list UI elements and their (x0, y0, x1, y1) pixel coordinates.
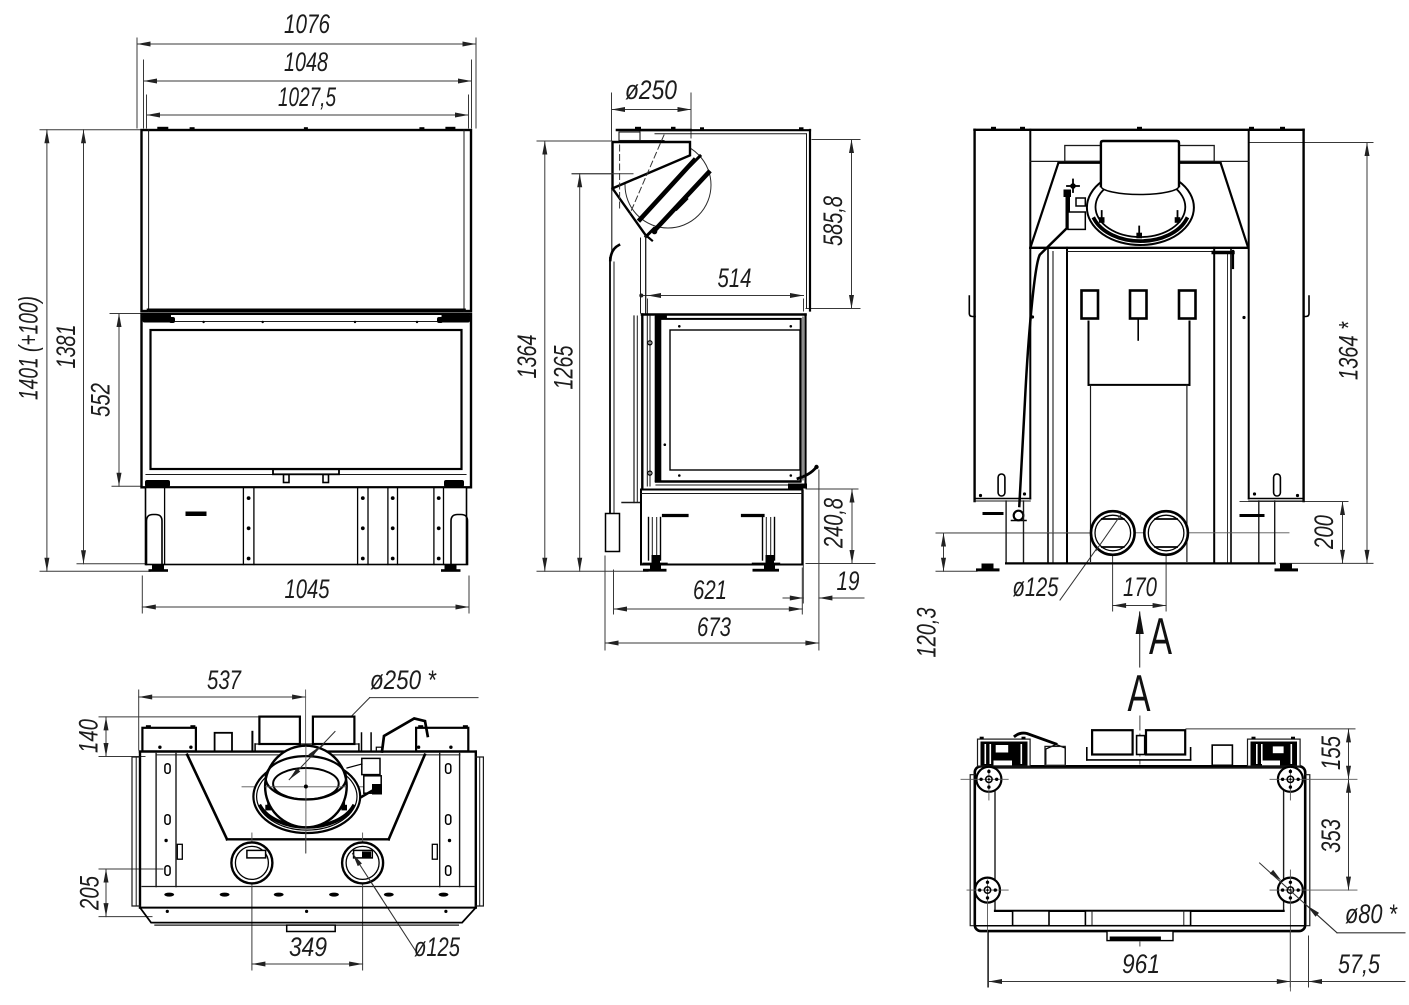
svg-text:1048: 1048 (284, 47, 328, 77)
svg-text:961: 961 (1122, 949, 1160, 979)
svg-text:1265: 1265 (549, 345, 579, 390)
svg-text:170: 170 (1123, 572, 1157, 602)
svg-text:140: 140 (74, 719, 104, 753)
svg-text:1076: 1076 (284, 9, 331, 39)
svg-text:353: 353 (1316, 819, 1346, 853)
svg-text:1027,5: 1027,5 (278, 82, 337, 112)
svg-text:585,8: 585,8 (818, 196, 848, 246)
svg-text:ø250: ø250 (625, 75, 677, 105)
svg-text:514: 514 (718, 263, 752, 293)
svg-text:621: 621 (693, 575, 727, 605)
svg-text:537: 537 (207, 665, 242, 695)
svg-text:1381: 1381 (51, 325, 81, 369)
svg-text:1364: 1364 (512, 335, 542, 379)
svg-text:205: 205 (75, 875, 105, 910)
svg-text:155: 155 (1316, 735, 1346, 770)
svg-text:1401 (+100): 1401 (+100) (14, 296, 44, 400)
svg-text:240,8: 240,8 (819, 498, 849, 549)
svg-text:ø250 *: ø250 * (370, 665, 437, 695)
svg-text:552: 552 (86, 383, 116, 417)
svg-text:ø125: ø125 (414, 932, 461, 962)
svg-text:A: A (1149, 608, 1172, 666)
svg-text:57,5: 57,5 (1338, 949, 1381, 979)
svg-text:1045: 1045 (285, 574, 331, 604)
svg-text:1364 *: 1364 * (1334, 321, 1364, 380)
svg-text:120,3: 120,3 (912, 608, 942, 658)
svg-text:200: 200 (1309, 515, 1339, 550)
svg-text:ø80 *: ø80 * (1345, 899, 1398, 929)
svg-text:19: 19 (837, 566, 860, 596)
svg-text:ø125: ø125 (1013, 572, 1060, 602)
svg-text:673: 673 (697, 612, 731, 642)
svg-text:A: A (1128, 665, 1151, 723)
svg-text:349: 349 (289, 932, 327, 962)
